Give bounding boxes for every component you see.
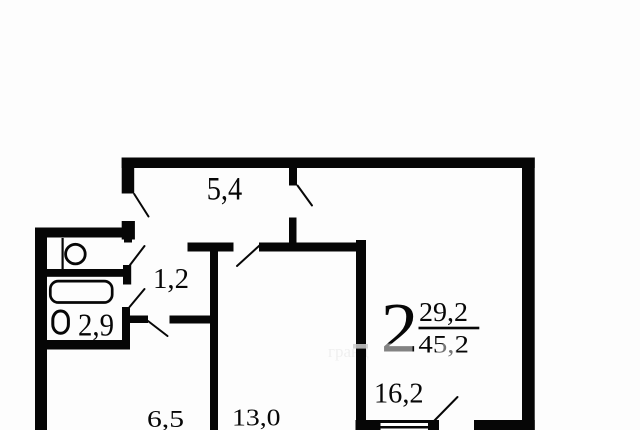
svg-text:5,4: 5,4 — [207, 171, 243, 207]
svg-text:16,2: 16,2 — [374, 377, 424, 409]
svg-text:6,5: 6,5 — [147, 407, 184, 430]
svg-text:2,9: 2,9 — [78, 307, 114, 342]
svg-text:13,0: 13,0 — [232, 406, 281, 430]
svg-text:29,2: 29,2 — [419, 296, 468, 327]
svg-text:2: 2 — [381, 290, 419, 368]
svg-text:1,2: 1,2 — [153, 264, 189, 295]
